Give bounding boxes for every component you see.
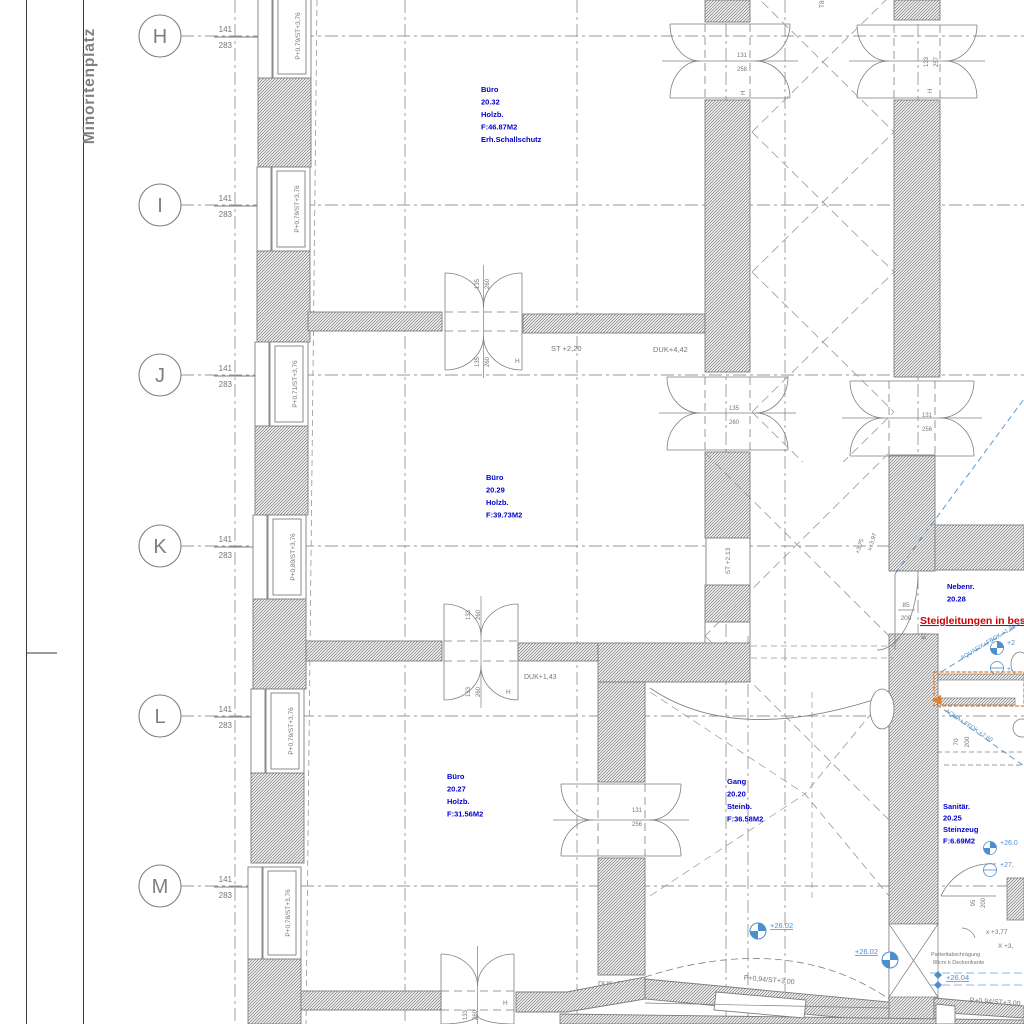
svg-text:Holzb.: Holzb. <box>486 498 509 507</box>
svg-text:95: 95 <box>971 899 977 906</box>
svg-text:DUK+4,42: DUK+4,42 <box>653 345 688 354</box>
svg-text:133: 133 <box>463 1009 469 1020</box>
svg-text:F:6.69M2: F:6.69M2 <box>943 837 975 846</box>
svg-text:283: 283 <box>219 891 233 900</box>
svg-text:H: H <box>928 89 934 93</box>
svg-text:Erh.Schallschutz: Erh.Schallschutz <box>481 135 542 144</box>
svg-text:141: 141 <box>219 194 233 203</box>
svg-text:131: 131 <box>632 808 643 814</box>
svg-text:135: 135 <box>729 406 740 412</box>
svg-text:135: 135 <box>475 356 481 367</box>
svg-text:+2: +2 <box>1007 640 1015 647</box>
svg-text:+26.02: +26.02 <box>770 921 793 930</box>
svg-text:283: 283 <box>219 380 233 389</box>
svg-text:87: 87 <box>922 632 928 639</box>
svg-text:200: 200 <box>901 615 912 622</box>
svg-text:ST +2,13: ST +2,13 <box>725 547 732 574</box>
svg-text:260: 260 <box>485 278 491 289</box>
svg-text:I: I <box>157 195 163 217</box>
svg-text:256: 256 <box>632 822 643 828</box>
svg-text:P+0,79/ST+3,76: P+0,79/ST+3,76 <box>288 707 295 755</box>
svg-text:260: 260 <box>729 420 740 426</box>
svg-text:DUK+1,43: DUK+1,43 <box>524 674 557 681</box>
svg-text:141: 141 <box>219 364 233 373</box>
svg-text:T8: T8 <box>819 0 826 8</box>
svg-text:80cm k Deckenkante: 80cm k Deckenkante <box>933 960 984 966</box>
svg-text:P+0,71/ST+3,76: P+0,71/ST+3,76 <box>292 360 299 408</box>
svg-text:F:36.58M2: F:36.58M2 <box>727 815 763 824</box>
svg-text:70: 70 <box>953 738 960 746</box>
svg-text:Büro: Büro <box>447 772 465 781</box>
svg-text:20.32: 20.32 <box>481 98 500 107</box>
svg-text:135: 135 <box>475 278 481 289</box>
svg-text:H: H <box>741 91 747 95</box>
svg-text:Holzb.: Holzb. <box>481 110 504 119</box>
svg-text:Nebenr.: Nebenr. <box>947 582 975 591</box>
svg-text:L: L <box>154 706 165 728</box>
svg-text:133: 133 <box>924 56 930 67</box>
svg-text:x +3,77: x +3,77 <box>986 929 1008 936</box>
svg-text:260: 260 <box>476 686 482 697</box>
svg-text:283: 283 <box>219 551 233 560</box>
svg-text:H: H <box>503 1000 508 1007</box>
svg-text:20.28: 20.28 <box>947 595 966 604</box>
svg-text:H: H <box>506 689 511 696</box>
svg-text:+26.04: +26.04 <box>946 973 969 982</box>
svg-text:141: 141 <box>219 535 233 544</box>
svg-text:131: 131 <box>737 53 748 59</box>
svg-text:200: 200 <box>981 897 987 908</box>
svg-text:283: 283 <box>219 41 233 50</box>
svg-text:20.27: 20.27 <box>447 785 466 794</box>
svg-text:260: 260 <box>485 356 491 367</box>
svg-text:260: 260 <box>473 1009 479 1020</box>
svg-text:Steigleitungen in bes: Steigleitungen in bes <box>920 615 1024 627</box>
svg-text:M: M <box>152 876 169 898</box>
svg-text:P+0,80/ST+3,76: P+0,80/ST+3,76 <box>290 533 297 581</box>
svg-text:Steinzeug: Steinzeug <box>943 825 979 834</box>
svg-text:200: 200 <box>964 736 971 747</box>
svg-text:F:46.87M2: F:46.87M2 <box>481 123 517 132</box>
svg-text:133: 133 <box>466 686 472 697</box>
svg-text:85: 85 <box>902 602 910 609</box>
svg-text:133: 133 <box>466 609 472 620</box>
svg-text:Parkettabschrägung: Parkettabschrägung <box>931 952 980 958</box>
svg-text:Steinb.: Steinb. <box>727 802 752 811</box>
svg-text:J: J <box>155 365 165 387</box>
svg-text:131: 131 <box>922 413 933 419</box>
svg-text:ST +2,20: ST +2,20 <box>551 344 582 353</box>
svg-text:Holzb.: Holzb. <box>447 797 470 806</box>
svg-text:P+0,79/ST+3,76: P+0,79/ST+3,76 <box>294 185 301 233</box>
svg-text:256: 256 <box>922 427 933 433</box>
svg-text:141: 141 <box>219 875 233 884</box>
svg-text:Büro: Büro <box>486 473 504 482</box>
svg-text:260: 260 <box>476 609 482 620</box>
svg-text:20.25: 20.25 <box>943 814 962 823</box>
svg-text:K: K <box>153 536 167 558</box>
svg-text:H: H <box>515 358 520 365</box>
svg-text:P+0,78/ST+3,76: P+0,78/ST+3,76 <box>285 889 292 937</box>
svg-text:+26.0: +26.0 <box>1000 840 1018 847</box>
svg-text:257: 257 <box>934 56 940 67</box>
svg-text:F:39.73M2: F:39.73M2 <box>486 511 522 520</box>
svg-text:283: 283 <box>219 721 233 730</box>
svg-text:141: 141 <box>219 705 233 714</box>
svg-text:283: 283 <box>219 210 233 219</box>
svg-text:+27,: +27, <box>1000 862 1014 869</box>
svg-text:+26.02: +26.02 <box>855 947 878 956</box>
svg-text:X +3,: X +3, <box>998 943 1014 950</box>
svg-text:H: H <box>153 26 167 48</box>
svg-text:Sanitär.: Sanitär. <box>943 802 970 811</box>
svg-text:F:31.56M2: F:31.56M2 <box>447 810 483 819</box>
svg-text:258: 258 <box>737 67 748 73</box>
svg-text:Gang: Gang <box>727 777 747 786</box>
svg-text:Büro: Büro <box>481 85 499 94</box>
svg-text:P+0,79/ST+3,76: P+0,79/ST+3,76 <box>295 12 302 60</box>
svg-text:20.29: 20.29 <box>486 486 505 495</box>
svg-text:Minoritenplatz: Minoritenplatz <box>81 28 98 144</box>
svg-text:141: 141 <box>219 25 233 34</box>
svg-text:20.20: 20.20 <box>727 790 746 799</box>
